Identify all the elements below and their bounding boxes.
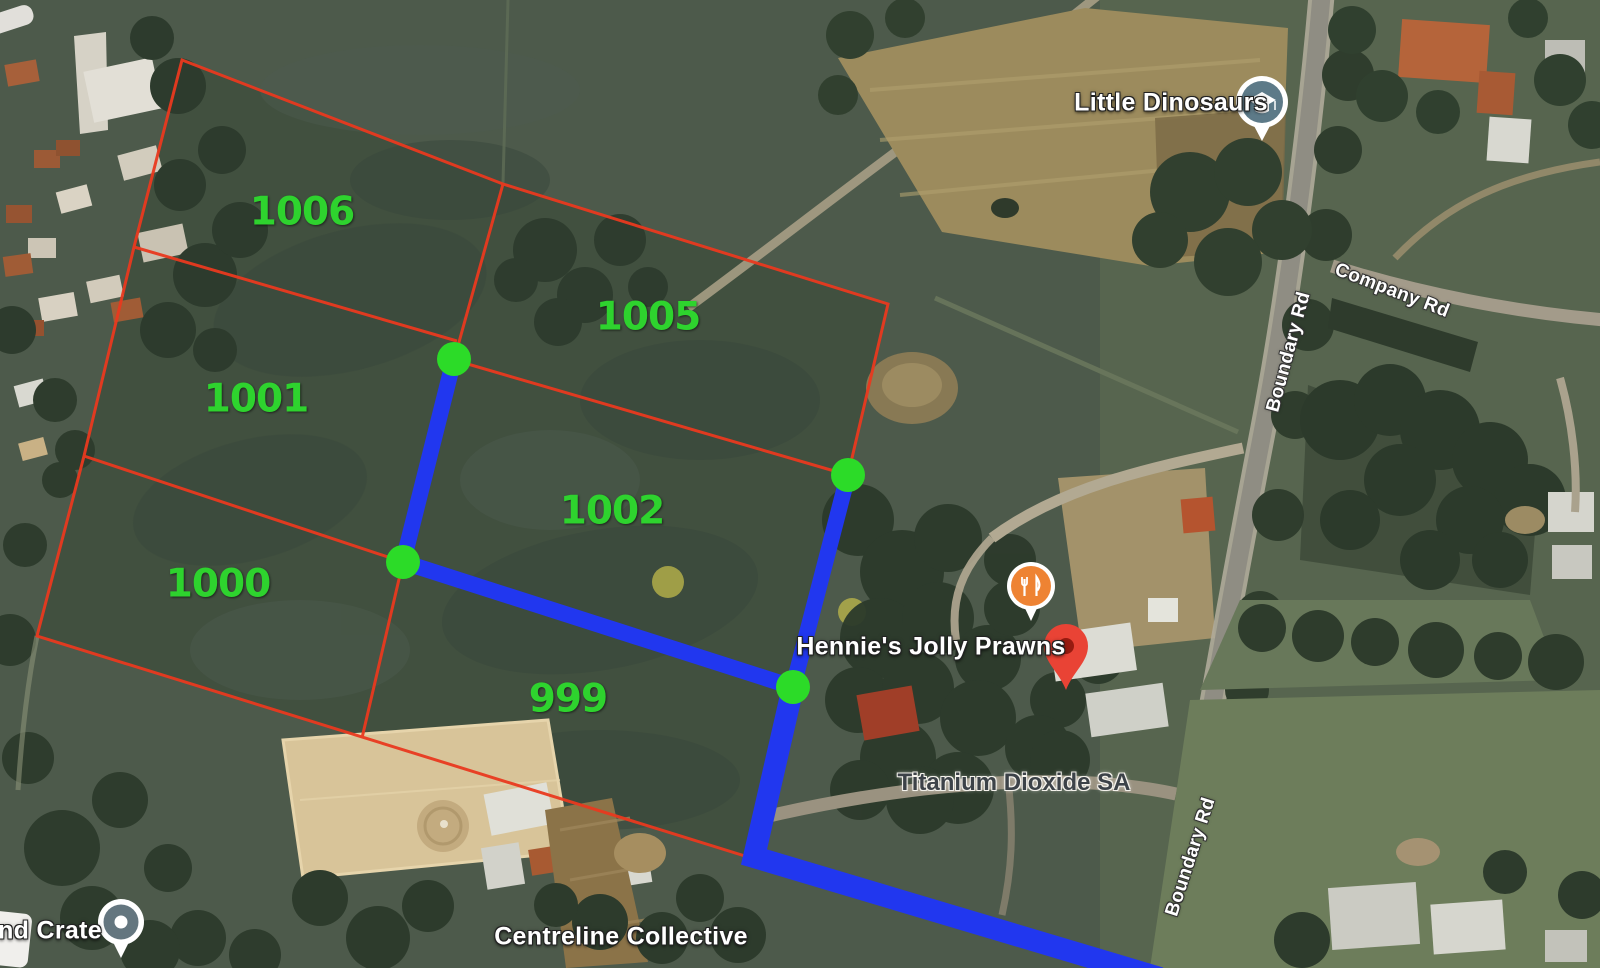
map-viewport[interactable]: 1006 1005 1001 1002 1000 999 Little Dino…	[0, 0, 1600, 968]
place-label-centreline-collective[interactable]: Centreline Collective	[494, 923, 748, 952]
parcel-label-999: 999	[529, 677, 607, 722]
parcel-label-1005: 1005	[596, 295, 701, 340]
parcel-label-1001: 1001	[204, 377, 309, 422]
place-label-hennies-jolly-prawns[interactable]: Hennie's Jolly Prawns	[796, 633, 1065, 662]
route-vertex[interactable]	[437, 342, 471, 376]
route-vertex[interactable]	[776, 670, 810, 704]
dirt-patch-core	[882, 363, 942, 407]
tree-dot	[991, 198, 1019, 218]
place-label-nd-crate[interactable]: nd Crate	[0, 917, 102, 946]
dirt-blob	[614, 833, 666, 873]
parcel-label-1006: 1006	[250, 190, 355, 235]
pin-dot-icon	[115, 916, 128, 929]
route-vertex[interactable]	[386, 545, 420, 579]
route-vertex[interactable]	[831, 458, 865, 492]
dirt-patch-east	[1505, 506, 1545, 534]
place-label-titanium-dioxide-sa[interactable]: Titanium Dioxide SA	[898, 769, 1131, 797]
parcel-label-1002: 1002	[560, 489, 665, 534]
ball-diamond-mound	[440, 820, 448, 828]
satellite-map-canvas[interactable]	[0, 0, 1600, 968]
place-label-little-dinosaurs[interactable]: Little Dinosaurs	[1074, 89, 1268, 118]
dirt-bottom-right	[1396, 838, 1440, 866]
parcel-label-1000: 1000	[166, 562, 271, 607]
